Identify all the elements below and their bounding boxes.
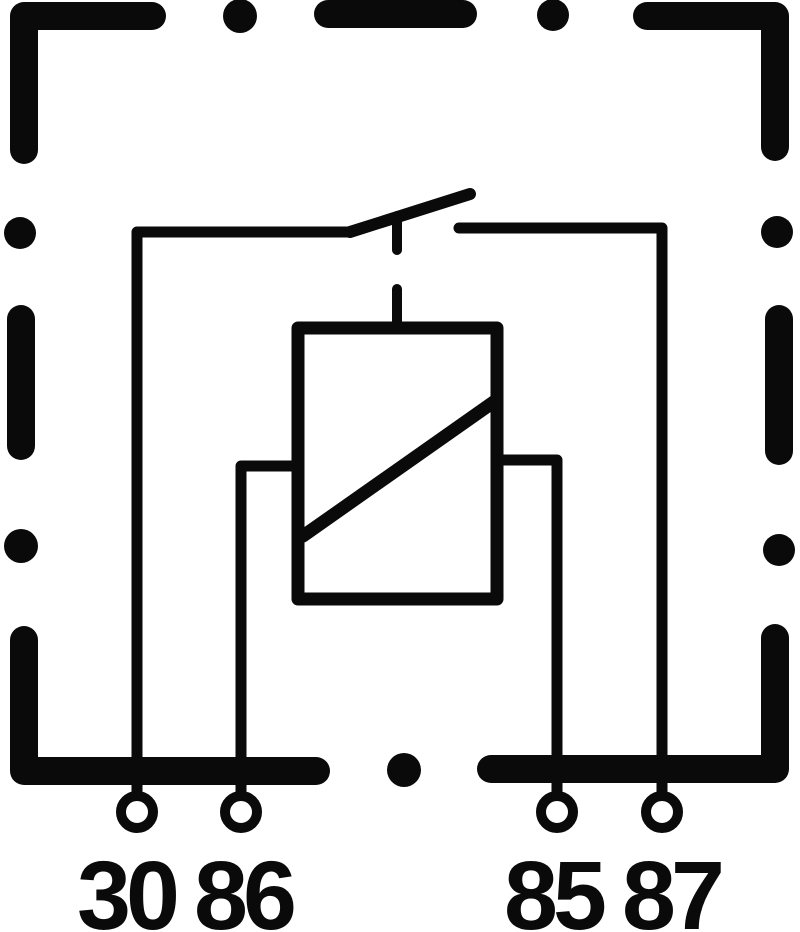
switch-blade [350,194,470,232]
relay-circuit [137,194,662,793]
border-top-dot-1 [223,0,257,33]
border-right-dot-2 [763,534,795,566]
border-top-left-corner [24,16,152,150]
terminal-labels: 30 86 85 87 [77,841,721,932]
terminal-86-wire [241,466,299,793]
border-top-dot-2 [537,0,569,31]
terminal-87-label: 87 [622,841,721,932]
border-bottom-right-corner [491,638,775,769]
border-left-dot-2 [4,529,38,563]
terminal-85-label: 85 [504,841,605,932]
terminal-pins [121,796,678,828]
terminal-87-pin [646,796,678,828]
terminal-86-label: 86 [194,841,294,932]
terminal-85-pin [541,796,573,828]
border-top-right-corner [647,16,775,147]
border-bottom-dot [387,753,421,787]
terminal-85-wire [496,460,557,792]
border-bottom-left-corner [24,640,316,771]
relay-schematic-canvas: 30 86 85 87 [0,0,800,932]
terminal-30-label: 30 [77,841,176,932]
terminal-86-pin [225,796,257,828]
terminal-30-pin [121,796,153,828]
border-left-dot-1 [4,217,36,249]
relay-schematic-diagram: 30 86 85 87 [0,0,800,932]
border-right-dot-1 [761,216,793,248]
